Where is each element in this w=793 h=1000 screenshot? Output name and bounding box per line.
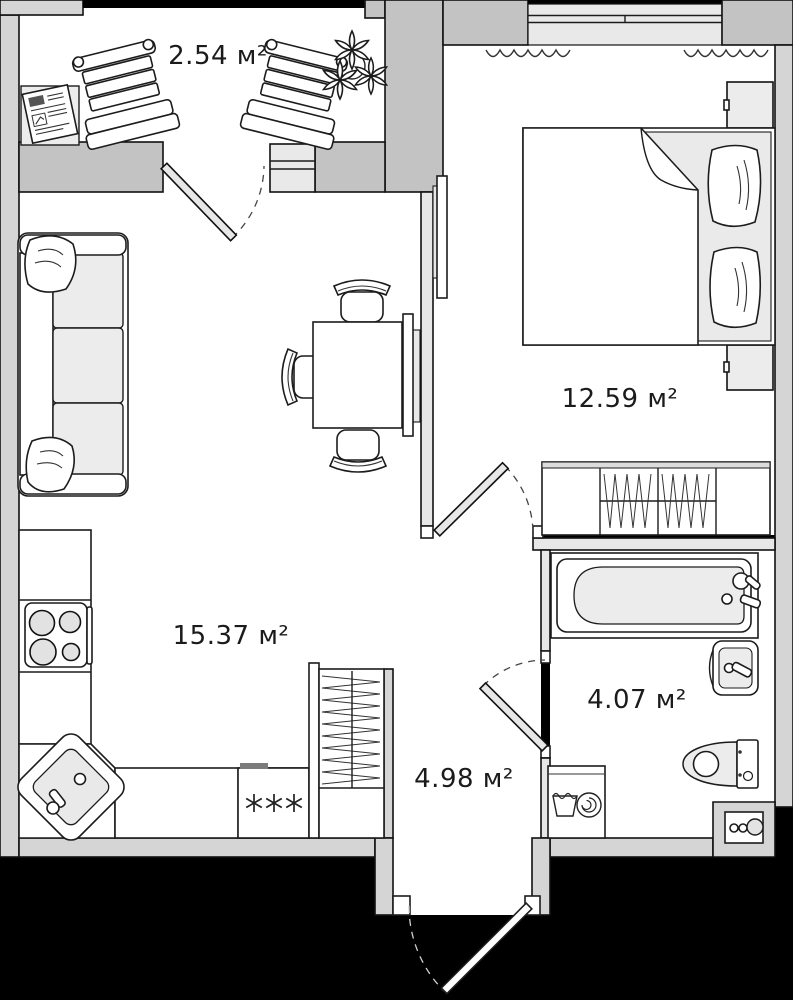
dining-table-icon [313,322,402,428]
nightstand-icon [724,82,773,128]
bathroom-door-cap [541,651,550,663]
floor-plan: 2.54 м² 12.59 м² 15.37 м² 4.98 м² 4.07 м… [0,0,793,1000]
wardrobe-icon [542,462,770,535]
pillow-icon [26,437,74,491]
kitchen-bottom-wall [19,838,375,857]
living-bedroom-partition [421,192,433,526]
wardrobe-hall-wall [384,669,393,838]
bathroom-bottom-wall [550,838,713,857]
balcony-glazing-edge [83,0,365,8]
nightstand-icon [724,345,773,390]
bathroom-left-wall-top [541,550,550,651]
washbasin-icon [710,641,759,695]
blanket [523,128,698,345]
chair-icon [330,430,386,472]
wardrobe-icon [309,663,384,838]
balcony-bedroom-wall [385,0,443,192]
stove-icon [25,603,92,667]
pillow-icon [708,146,760,227]
bed-icon [523,128,775,345]
left-outer-wall [0,15,19,857]
bathtub-icon [551,553,761,638]
hallway-area-label: 4.98 м² [414,764,514,794]
balcony-window-icon [270,144,315,192]
bedroom-area-label: 12.59 м² [562,384,679,414]
pipe-risers-icon [725,812,763,843]
partition-end-cap [421,526,433,538]
sofa-icon [18,233,128,496]
bedroom-top-wall-left [443,0,528,45]
balcony-area-label: 2.54 м² [168,41,268,71]
living-area-label: 15.37 м² [173,621,290,651]
floor-plan-canvas: 2.54 м² 12.59 м² 15.37 м² 4.98 м² 4.07 м… [0,0,793,1000]
entry-vestibule-floor [393,838,532,915]
bedroom-top-wall-right [722,0,793,45]
newspaper-icon [22,85,77,143]
bedroom-window-icon [528,0,722,45]
chair-icon [334,280,390,322]
bathroom-area-label: 4.07 м² [587,685,687,715]
right-outer-wall [775,45,793,807]
tv-icon [403,314,420,436]
pillow-icon [710,248,760,328]
vestibule-left-wall [375,838,393,915]
bedroom-bathroom-wall [533,538,775,550]
fridge-snowflakes-icon [238,763,309,838]
washing-machine-icon [548,766,605,838]
balcony-corner-wall [365,0,385,18]
pillow-icon [25,236,76,292]
entry-door-jamb-left [393,896,410,915]
balcony-top-cap-wall [0,0,83,15]
